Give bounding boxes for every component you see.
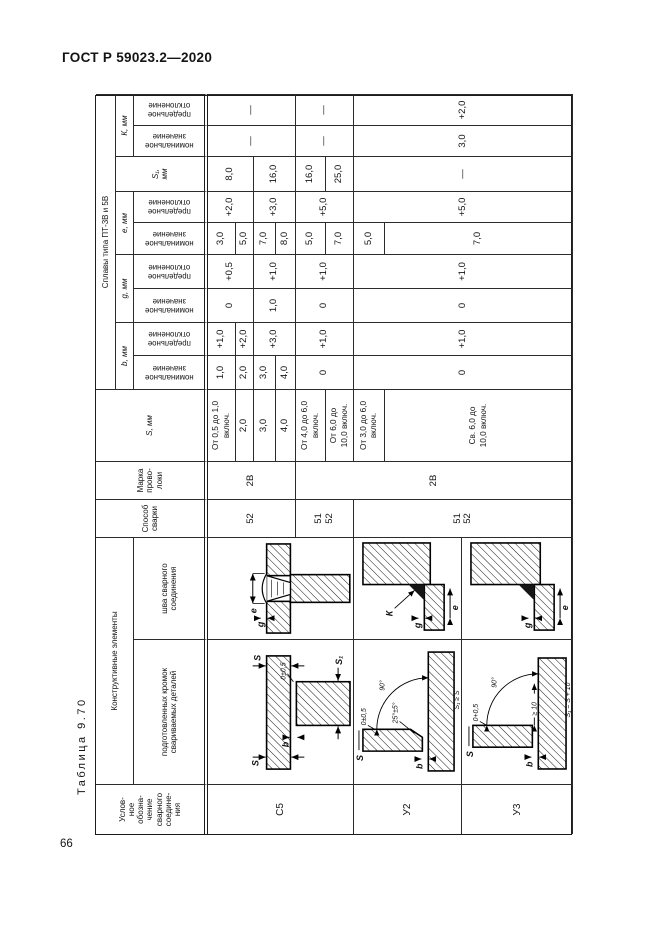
header-e-nominal-label: номинальное значение: [145, 229, 194, 248]
k-dev-mid: —: [296, 94, 354, 125]
header-e-deviation-label: предельное отклонение: [148, 198, 191, 217]
header-prepared-edges: подготовленных кромок свариваемых детале…: [134, 639, 208, 784]
dim-s-right: S: [253, 655, 263, 661]
document-title: ГОСТ Р 59023.2—2020: [62, 50, 212, 65]
e-nom-r3: 7,0: [254, 222, 276, 254]
dim-b: b: [414, 763, 424, 769]
dim-s: S: [465, 751, 475, 757]
header-g: g, мм: [116, 254, 134, 322]
diagram-u3-prepared-edges: 90° 0+0,5 S b ≥ 10 S₁ = S + 10: [462, 639, 573, 784]
diagram-u2-prepared-edges: 90° 25°±5° 0±0,5 S b S₁ ≥ S: [354, 639, 462, 784]
g-nom-r5-6: 0: [296, 288, 354, 322]
header-g-deviation: предельное отклонение: [134, 254, 208, 288]
note-angle-90: 90°: [379, 680, 387, 691]
b-nom-r1: 1,0: [208, 355, 236, 389]
note-bevel-angle: 25°±5°: [392, 702, 400, 724]
header-wire-grade: Марка прово- локи: [96, 461, 208, 499]
header-s-thickness: S, мм: [96, 389, 208, 461]
note-tolerance: 0±0,5: [280, 662, 287, 679]
header-b-deviation: предельное отклонение: [134, 322, 208, 355]
header-joint-designation: Услов- ное обозна- чение сварного соедин…: [96, 784, 208, 834]
header-b-nominal-label: номинальное значение: [145, 363, 194, 382]
header-e: е, мм: [116, 191, 134, 254]
b-nom-r7-8: 0: [354, 355, 573, 389]
k-dev-u: +2,0: [354, 94, 573, 125]
g-dev-r3-4: +1,0: [254, 254, 296, 288]
note-tolerance: 0+0,5: [473, 704, 480, 722]
document-page: ГОСТ Р 59023.2—2020 66 Таблица 9.70 Усло…: [0, 0, 661, 935]
header-constructive-elements: Конструктивные элементы: [96, 537, 134, 784]
diagram-u3-weld-seam: g е: [462, 537, 573, 639]
g-dev-r5-6: +1,0: [296, 254, 354, 288]
table-caption-text: Таблица 9.70: [76, 697, 88, 795]
g-dev-r7-8: +1,0: [354, 254, 573, 288]
k-nom-u: 3,0: [354, 125, 573, 156]
header-e-deviation: предельное отклонение: [134, 191, 208, 222]
dim-g: g: [256, 621, 266, 628]
s1-r7-8: —: [354, 156, 573, 191]
header-k: К, мм: [116, 94, 134, 156]
dim-g: g: [412, 622, 422, 629]
b-dev-r3-4: +3,0: [254, 322, 296, 355]
dim-b: b: [280, 741, 290, 747]
e-dev-r5-6: +5,0: [296, 191, 354, 222]
e-nom-r6: 7,0: [326, 222, 354, 254]
s-range-row3: 3,0: [254, 389, 276, 461]
g-nom-r7-8: 0: [354, 288, 573, 322]
s-range-row8: Св. 6,0 до 10,0 включ.: [385, 389, 573, 461]
header-s1: S₁, мм: [116, 156, 208, 191]
s-range-row2: 2,0: [236, 389, 254, 461]
s1-r3-4: 16,0: [254, 156, 296, 191]
method-u2-u3: 51 52: [354, 499, 573, 537]
dim-s-left: S: [251, 760, 261, 766]
k-nom-c5: —: [208, 125, 296, 156]
note-tolerance: 0±0,5: [361, 708, 368, 725]
diagram-u2-weld-seam: g е К: [354, 537, 462, 639]
diagram-c5-weld-seam: е g: [208, 537, 354, 639]
e-nom-r8: 7,0: [385, 222, 573, 254]
joint-u2-label: У2: [354, 784, 462, 834]
dim-b: b: [524, 761, 534, 767]
e-nom-r5: 5,0: [296, 222, 326, 254]
header-k-nominal: номинальное значение: [134, 125, 208, 156]
header-weld-seam: шва сварного соединения: [134, 537, 208, 639]
g-nom-r3-4: 1,0: [254, 288, 296, 322]
e-nom-r1: 3,0: [208, 222, 236, 254]
header-e-nominal: номинальное значение: [134, 222, 208, 254]
g-nom-r1-2: 0: [208, 288, 254, 322]
dim-k: К: [385, 610, 395, 616]
dim-s: S: [355, 755, 365, 761]
k-dev-c5: —: [208, 94, 296, 125]
method-c5-thick: 51 52: [296, 499, 354, 537]
e-nom-r7: 5,0: [354, 222, 385, 254]
s-range-row1: От 0,5 до 1,0 включ.: [208, 389, 236, 461]
s-range-row6: От 6,0 до 10,0 включ.: [326, 389, 354, 461]
joint-u3-label: У3: [462, 784, 573, 834]
header-k-nominal-label: номинальное значение: [145, 132, 194, 151]
e-nom-r4: 8,0: [276, 222, 296, 254]
header-g-nominal: номинальное значение: [134, 288, 208, 322]
joint-c5-label: С5: [208, 784, 354, 834]
rotated-table-area: Таблица 9.70 Услов- ное обозна- чение св…: [95, 95, 572, 835]
dim-e: е: [560, 605, 570, 610]
method-c5-thin: 52: [208, 499, 296, 537]
header-k-deviation: предельное отклонение: [134, 94, 208, 125]
s-range-row7: От 3,0 до 6,0 включ.: [354, 389, 385, 461]
wire-grade-2: 2В: [296, 461, 573, 499]
e-dev-r3-4: +3,0: [254, 191, 296, 222]
b-dev-r7-8: +1,0: [354, 322, 573, 355]
header-b: b, мм: [116, 322, 134, 389]
header-g-nominal-label: номинальное значение: [145, 296, 194, 315]
landscape-table: Таблица 9.70 Услов- ное обозна- чение св…: [95, 95, 572, 835]
s1-r1-2: 8,0: [208, 156, 254, 191]
s1-r5: 16,0: [296, 156, 326, 191]
s-range-row5: От 4,0 до 6,0 включ.: [296, 389, 326, 461]
b-nom-r5-6: 0: [296, 355, 354, 389]
b-nom-r3: 3,0: [254, 355, 276, 389]
b-nom-r2: 2,0: [236, 355, 254, 389]
dim-e: е: [249, 608, 259, 613]
header-k-deviation-label: предельное отклонение: [148, 101, 191, 120]
b-dev-r5-6: +1,0: [296, 322, 354, 355]
diagram-c5-prepared-edges: S S b S₁ 0±0,5: [208, 639, 354, 784]
dim-g: g: [522, 622, 532, 629]
dim-s1: S₁: [334, 656, 344, 665]
page-number: 66: [60, 838, 73, 850]
wire-grade-1: 2В: [208, 461, 296, 499]
dim-edge-distance: ≥ 10: [531, 702, 538, 716]
note-s1-ge-s: S₁ ≥ S: [454, 690, 460, 709]
b-nom-r4: 4,0: [276, 355, 296, 389]
note-s1-formula: S₁ = S + 10: [565, 682, 571, 717]
header-g-deviation-label: предельное отклонение: [148, 262, 191, 281]
s1-r6: 25,0: [326, 156, 354, 191]
note-angle-90: 90°: [491, 677, 499, 688]
welding-table: Услов- ное обозна- чение сварного соедин…: [95, 95, 572, 835]
b-dev-r2: +2,0: [236, 322, 254, 355]
s-range-row4: 4,0: [276, 389, 296, 461]
e-dev-r1-2: +2,0: [208, 191, 254, 222]
header-b-deviation-label: предельное отклонение: [148, 330, 191, 349]
e-nom-r2: 5,0: [236, 222, 254, 254]
k-nom-mid: —: [296, 125, 354, 156]
dim-e: е: [450, 605, 460, 610]
table-caption: Таблица 9.70: [76, 697, 88, 795]
e-dev-r7-8: +5,0: [354, 191, 573, 222]
header-alloys-group: Сплавы типа ПТ-3В и 5В: [96, 94, 116, 389]
b-dev-r1: +1,0: [208, 322, 236, 355]
g-dev-r1-2: +0,5: [208, 254, 254, 288]
header-b-nominal: номинальное значение: [134, 355, 208, 389]
header-welding-method: Способ сварки: [96, 499, 208, 537]
